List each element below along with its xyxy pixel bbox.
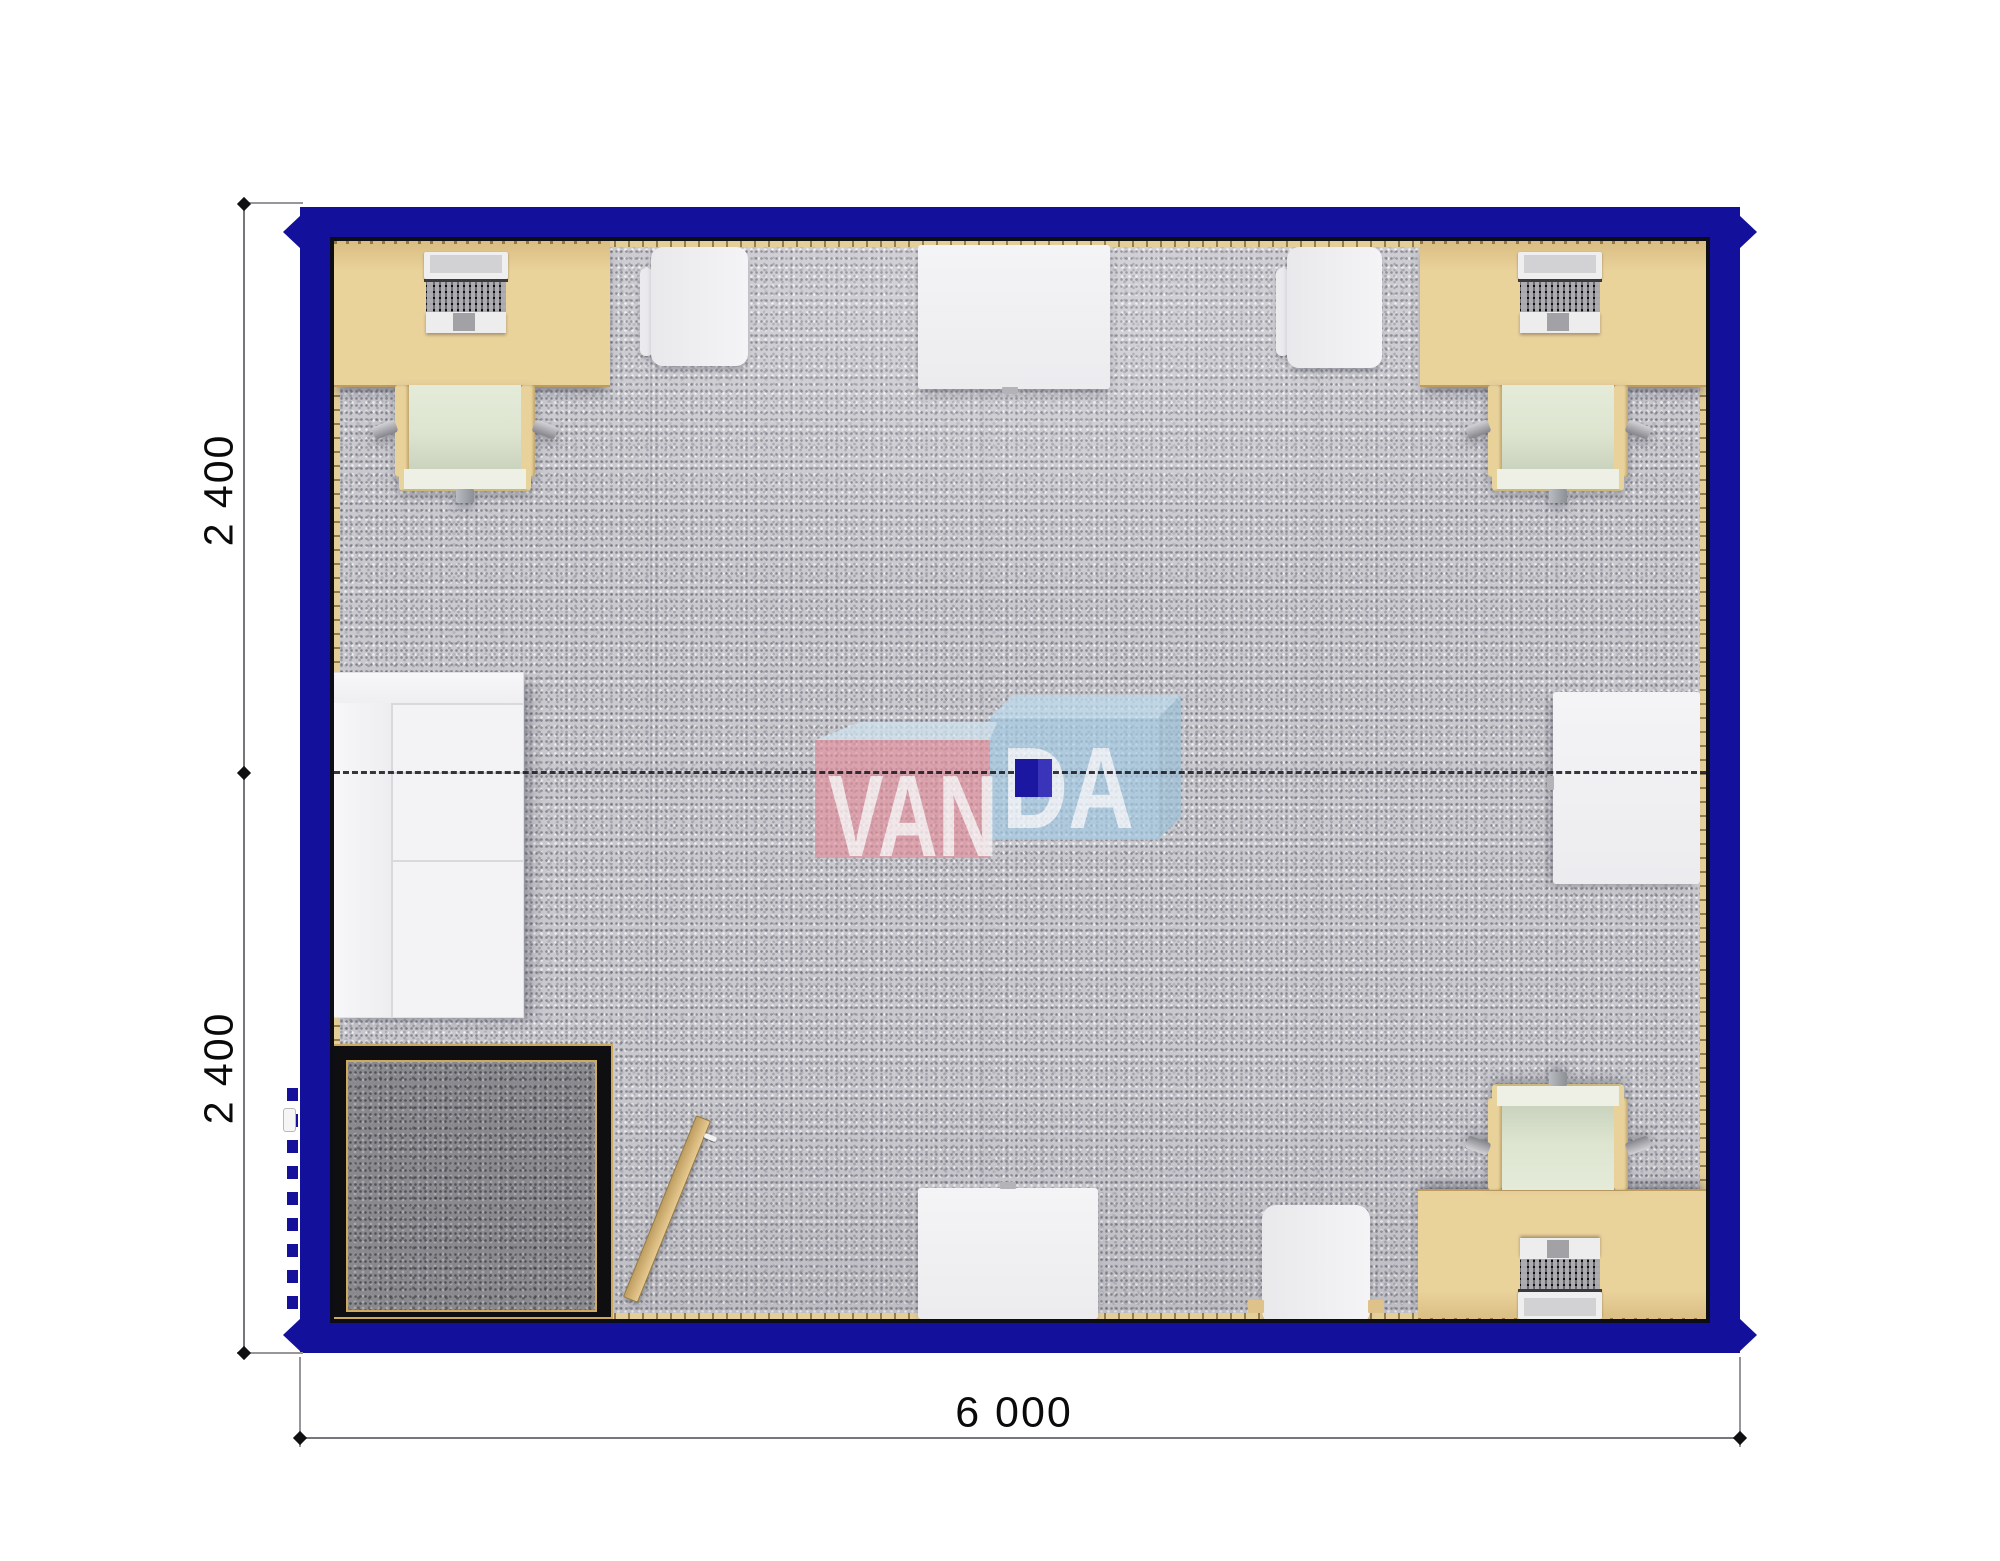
floor-plan-canvas: VAN DA xyxy=(0,0,2000,1561)
wall-inner-outline xyxy=(330,237,1710,1323)
exterior-door-handle xyxy=(283,1108,296,1132)
dimension-tick xyxy=(237,1346,251,1360)
corner-casting-top-left xyxy=(283,215,301,249)
dimension-tick xyxy=(293,1431,307,1445)
dimension-label-bottom: 6 000 xyxy=(955,1389,1073,1438)
corner-casting-top-right xyxy=(1739,215,1757,249)
corner-casting-bottom-left xyxy=(283,1318,301,1352)
dimension-tick xyxy=(1733,1431,1747,1445)
dimension-label-left-lower: 2 400 xyxy=(196,1012,243,1125)
dimension-tick xyxy=(237,197,251,211)
corner-casting-bottom-right xyxy=(1739,1318,1757,1352)
extension-line xyxy=(243,202,303,204)
dimension-label-left-upper: 2 400 xyxy=(196,434,243,547)
dimension-tick xyxy=(237,766,251,780)
